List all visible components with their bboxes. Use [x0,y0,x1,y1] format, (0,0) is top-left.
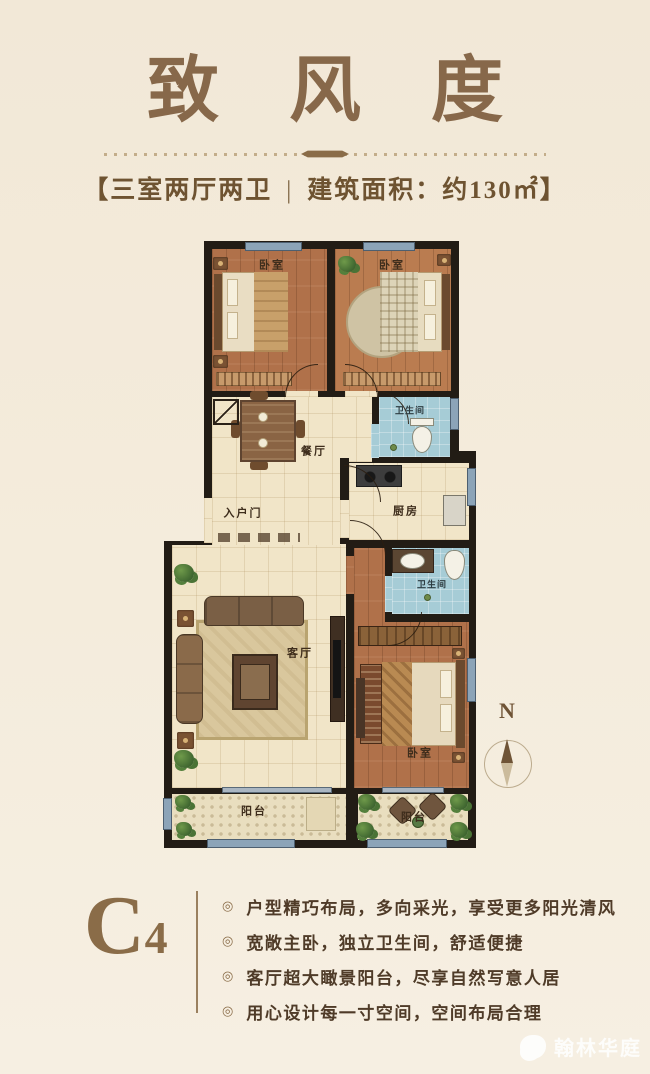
bed-pillow [424,314,436,340]
nightstand [437,254,451,266]
plant [175,795,191,809]
feature-item: ◎ 户型精巧布局，多向采光，享受更多阳光清风 [222,889,616,924]
room-label-dining: 餐厅 [301,447,327,458]
window-balcony-left [207,839,295,848]
bed-headboard [442,274,450,350]
bed-pillow [424,280,436,306]
side-table [177,732,194,749]
sliding-door-balcony-right [382,787,444,793]
coffee-table-top [240,664,270,700]
unit-code-letter: C [84,879,145,972]
feature-item: ◎ 用心设计每一寸空间，空间布局合理 [222,994,616,1029]
plant [450,822,468,838]
footer-divider [196,891,198,1013]
compass-needle-south-icon [501,763,513,787]
nightstand [213,257,228,270]
bullet-icon: ◎ [222,900,233,913]
plant [450,794,468,810]
bullet-icon: ◎ [222,970,233,983]
plant [358,794,376,810]
bed-pillow [440,670,452,698]
floor-drain [424,594,431,601]
dining-chair [250,461,268,470]
feature-text: 户型精巧布局，多向采光，享受更多阳光清风 [246,894,616,919]
poster: 致 风 度 【三室两厅两卫|建筑面积：约130㎡】 [0,0,650,1074]
room-label-bedroom-top-right: 卧室 [379,261,405,272]
entry-door-label: 入户门 [224,509,263,520]
plate [258,438,268,448]
bed-pillow [227,279,238,306]
plant [338,256,356,272]
bed-blanket [254,272,288,352]
plate [258,412,268,422]
room-label-bedroom-top-left: 卧室 [259,261,285,272]
feature-list: ◎ 户型精巧布局，多向采光，享受更多阳光清风 ◎ 宽敞主卧，独立卫生间，舒适便捷… [222,889,616,1029]
fridge [443,495,466,526]
nightstand [452,648,465,659]
balcony-mat [306,797,336,831]
plant [174,564,194,582]
watermark: 翰林华庭 [520,1032,642,1061]
door-gap-entry [204,498,212,543]
feature-text: 宽敞主卧，独立卫生间，舒适便捷 [246,929,524,954]
toilet-tank [410,418,434,426]
watermark-logo-icon [520,1035,546,1059]
radiator-bedroom-left [216,372,292,386]
sliding-door-balcony-left [222,787,332,793]
bullet-icon: ◎ [222,1005,233,1018]
plant [356,822,374,838]
side-table [177,610,194,627]
window-bedroom-right [363,242,415,251]
bed-blanket [382,662,412,746]
feature-item: ◎ 宽敞主卧，独立卫生间，舒适便捷 [222,924,616,959]
window-balcony-left-side [163,798,172,830]
compass-needle-north-icon [501,739,513,763]
bed-pillow [440,704,452,732]
shoe-cabinet [213,399,239,425]
bed-headboard [214,274,222,350]
window-master [467,658,476,702]
bed-headboard [456,660,465,748]
nightstand [213,355,228,368]
bullet-icon: ◎ [222,935,233,948]
room-label-balcony-right: 阳台 [401,813,427,824]
feature-item: ◎ 客厅超大瞰景阳台，尽享自然写意人居 [222,959,616,994]
window-bedroom-left [245,242,302,251]
feature-text: 用心设计每一寸空间，空间布局合理 [246,999,542,1024]
room-label-bathroom-upper: 卫生间 [395,407,425,416]
plant [176,822,192,836]
plant [174,750,194,768]
window-kitchen [467,468,476,506]
bed-blanket-checkered [380,272,418,352]
room-label-kitchen: 厨房 [393,507,419,518]
watermark-text: 翰林华庭 [554,1032,642,1061]
window-bathroom-upper [450,398,459,430]
bed-pillow [227,312,238,339]
sofa-main [204,596,304,626]
tv-screen [333,640,341,698]
tv-bench [356,678,365,738]
room-label-living: 客厅 [287,649,313,660]
room-label-balcony-left: 阳台 [241,807,267,818]
dining-chair [250,391,268,400]
nightstand [452,752,465,763]
window-balcony-right [367,839,447,848]
room-label-bathroom-master: 卫生间 [417,581,447,590]
sofa-side [176,634,203,724]
unit-code: C4 [84,884,168,968]
room-label-bedroom-master: 卧室 [407,749,433,760]
sink-basin [400,553,425,569]
feature-text: 客厅超大瞰景阳台，尽享自然写意人居 [246,964,561,989]
unit-code-number: 4 [145,912,168,963]
compass-north-label: N [499,698,515,724]
entry-door-sill [218,533,300,542]
